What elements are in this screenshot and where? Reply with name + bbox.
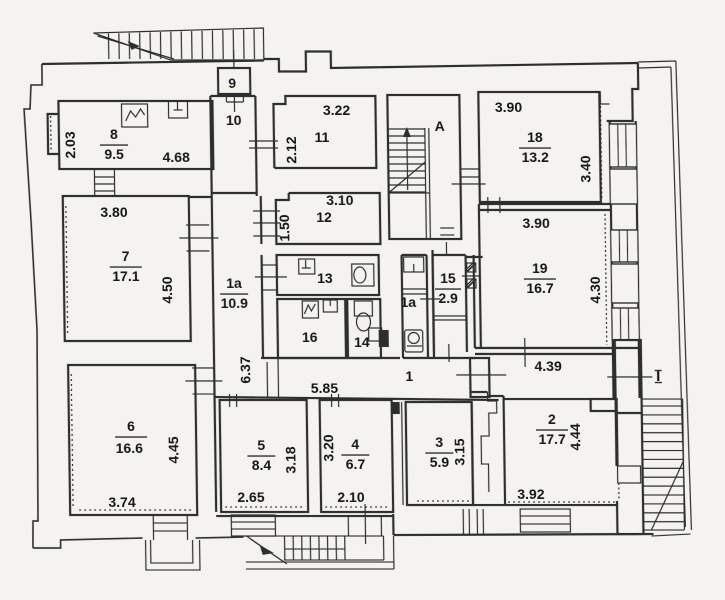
svg-text:15: 15: [440, 270, 456, 286]
svg-text:12: 12: [316, 209, 332, 225]
svg-text:4: 4: [351, 436, 359, 452]
svg-text:1: 1: [405, 368, 413, 384]
svg-text:16.7: 16.7: [526, 280, 554, 296]
svg-text:3.92: 3.92: [517, 486, 545, 502]
svg-text:6.7: 6.7: [346, 456, 366, 472]
svg-text:3.20: 3.20: [320, 434, 336, 461]
svg-text:2: 2: [548, 411, 556, 427]
svg-text:2.9: 2.9: [438, 290, 458, 306]
svg-text:3.40: 3.40: [577, 155, 593, 182]
svg-text:2.10: 2.10: [337, 489, 365, 505]
svg-text:1.50: 1.50: [276, 214, 292, 241]
svg-text:3.15: 3.15: [451, 438, 467, 465]
svg-text:2.03: 2.03: [62, 131, 78, 158]
svg-text:3.10: 3.10: [326, 192, 354, 208]
svg-text:9.5: 9.5: [104, 146, 124, 162]
svg-text:7: 7: [122, 248, 130, 264]
svg-text:10: 10: [226, 112, 242, 128]
svg-text:3.22: 3.22: [323, 102, 351, 118]
svg-text:8.4: 8.4: [252, 457, 272, 473]
svg-text:14: 14: [354, 334, 370, 350]
svg-text:1a: 1a: [226, 275, 242, 291]
svg-text:9: 9: [228, 75, 236, 91]
svg-text:1a: 1a: [400, 294, 416, 310]
svg-text:19: 19: [532, 260, 548, 276]
svg-text:3.74: 3.74: [108, 494, 136, 510]
svg-text:13: 13: [317, 270, 333, 286]
svg-text:4.68: 4.68: [162, 149, 190, 165]
svg-text:2.65: 2.65: [237, 489, 265, 505]
svg-text:4.44: 4.44: [567, 423, 583, 450]
svg-text:3: 3: [435, 434, 443, 450]
svg-text:5: 5: [257, 437, 265, 453]
svg-text:4.39: 4.39: [534, 358, 562, 374]
svg-text:3.80: 3.80: [100, 204, 128, 220]
svg-text:11: 11: [314, 129, 329, 145]
svg-text:17.1: 17.1: [112, 268, 140, 284]
svg-text:2.12: 2.12: [283, 136, 299, 163]
svg-text:16.6: 16.6: [116, 440, 144, 456]
svg-text:4.50: 4.50: [159, 276, 175, 303]
svg-text:13.2: 13.2: [521, 149, 549, 165]
svg-text:10.9: 10.9: [221, 295, 249, 311]
svg-text:6.37: 6.37: [237, 356, 253, 383]
svg-text:18: 18: [527, 129, 543, 145]
svg-text:5.85: 5.85: [311, 380, 339, 396]
svg-text:4.30: 4.30: [587, 276, 603, 303]
svg-text:8: 8: [110, 126, 118, 142]
svg-text:3.18: 3.18: [282, 446, 298, 473]
svg-text:16: 16: [302, 329, 318, 345]
svg-text:3.90: 3.90: [495, 99, 523, 115]
svg-text:5.9: 5.9: [430, 454, 450, 470]
svg-text:A: A: [435, 118, 445, 134]
svg-text:6: 6: [127, 418, 135, 434]
svg-text:4.45: 4.45: [165, 436, 181, 463]
svg-text:17.7: 17.7: [538, 431, 566, 447]
svg-text:3.90: 3.90: [522, 215, 550, 231]
